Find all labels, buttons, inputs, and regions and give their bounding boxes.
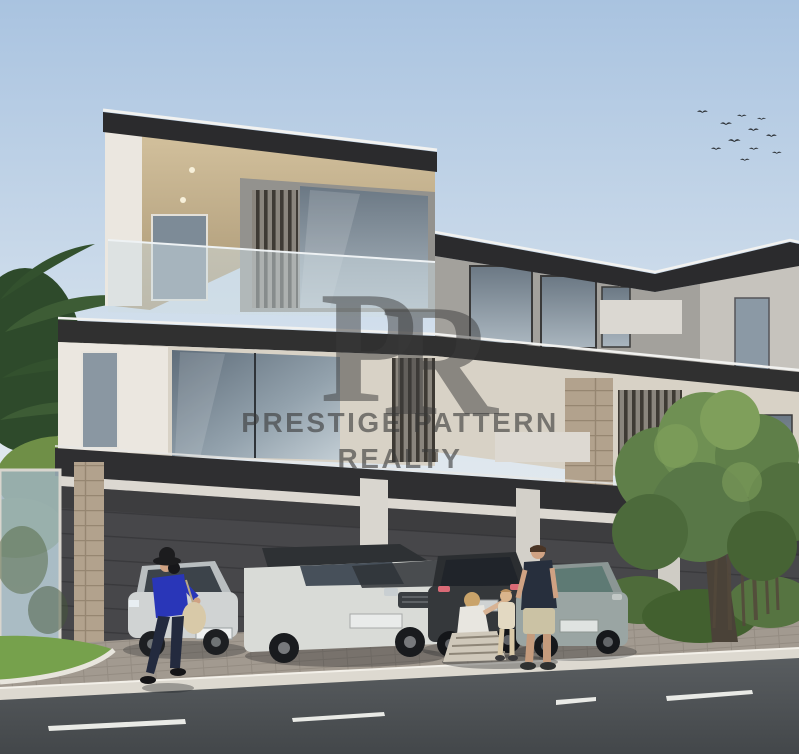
watermark-line1: PRESTIGE PATTERN <box>241 407 558 438</box>
watermark-line2: REALTY <box>338 443 463 474</box>
stone-pillar <box>74 462 104 650</box>
villa-rendering-photo: P R PRESTIGE PATTERN REALTY <box>0 0 799 754</box>
car-suv-white <box>244 544 450 667</box>
glass-fence-left <box>0 470 68 656</box>
rendering-canvas: P R PRESTIGE PATTERN REALTY <box>0 0 799 754</box>
